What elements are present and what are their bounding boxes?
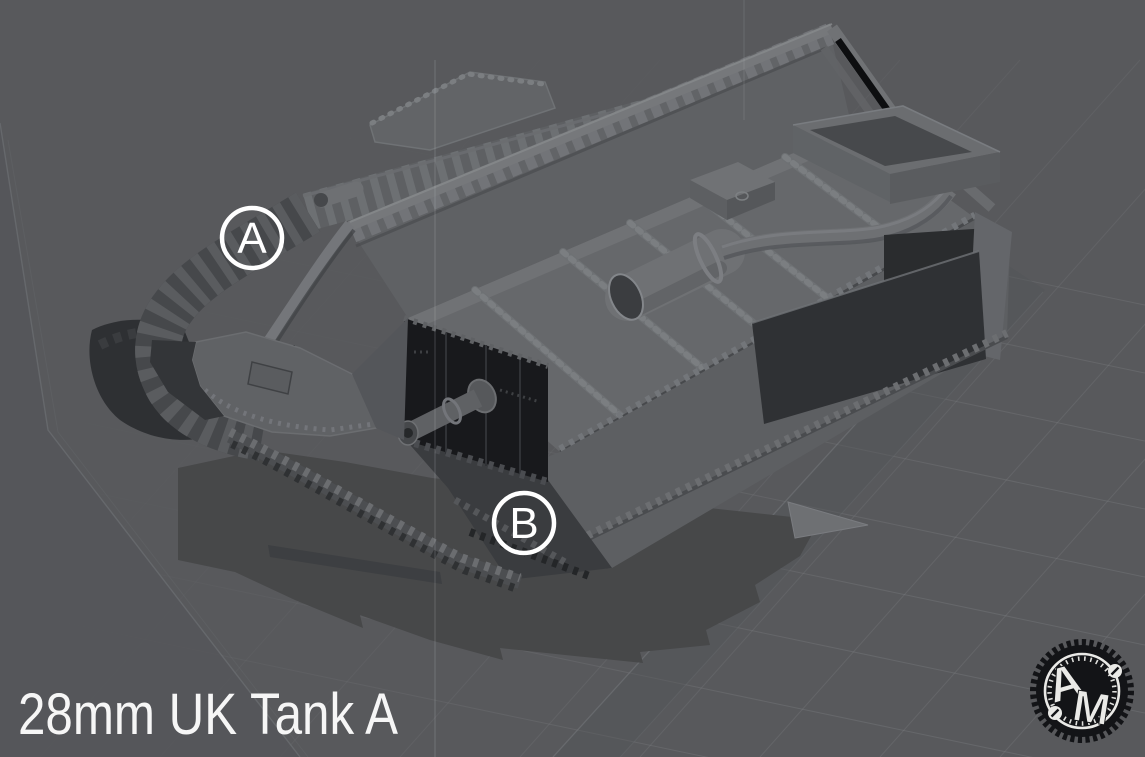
marker-b-label: B bbox=[509, 499, 538, 548]
logo-screw-top bbox=[1108, 664, 1122, 678]
viewport-3d[interactable]: A B A M 28mm UK Tank A bbox=[0, 0, 1145, 757]
logo-screw-bottom bbox=[1048, 706, 1062, 720]
model-caption: 28mm UK Tank A bbox=[18, 686, 398, 744]
am-gear-logo-icon: A M bbox=[1034, 643, 1131, 740]
marker-a-label: A bbox=[237, 214, 267, 263]
scene-render: A B A M bbox=[0, 0, 1145, 757]
logo-letter-m: M bbox=[1069, 681, 1113, 735]
